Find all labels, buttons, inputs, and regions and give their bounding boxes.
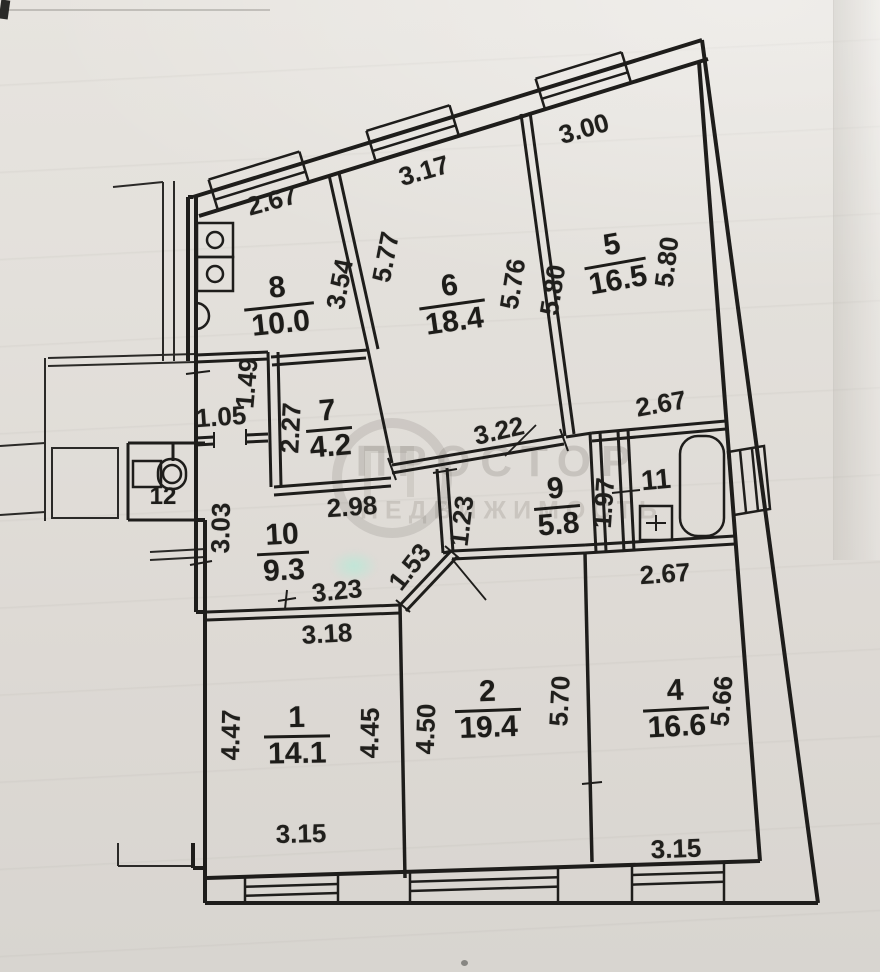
dim-room1-top: 3.18 (301, 617, 353, 651)
room-area: 16.6 (647, 709, 707, 744)
room-label-5: 5 16.5 (579, 225, 652, 301)
room-number: 6 (439, 270, 460, 303)
room-label-9: 9 5.8 (531, 472, 583, 542)
dim-wc-bottom: 2.67 (639, 557, 692, 591)
window-symbol (632, 862, 724, 903)
dim-hall10-left: 3.03 (205, 502, 237, 553)
room-label-4: 4 16.6 (641, 674, 710, 743)
room-number: 7 (318, 395, 337, 427)
sink-icon (197, 223, 233, 257)
room-label-6: 6 18.4 (415, 267, 490, 342)
dim-wc-left: 1.97 (587, 477, 621, 530)
room-label-10: 10 9.3 (255, 519, 310, 588)
dim-entry-width: 1.05 (195, 400, 248, 434)
bathtub-icon (680, 436, 724, 536)
room-area: 10.0 (250, 304, 311, 341)
room-area: 4.2 (308, 429, 352, 464)
stove-icon (197, 257, 233, 291)
toilet-icon (640, 506, 672, 540)
dim-room4-bottom: 3.15 (650, 833, 702, 866)
floorplan-drawing (0, 0, 880, 972)
dim-room1-bottom: 3.15 (275, 818, 326, 850)
room-number: 10 (265, 519, 300, 551)
room-number: 9 (546, 473, 565, 505)
door-leaf-icon (452, 559, 486, 600)
room-label-12: 12 (150, 483, 177, 511)
dim-room5-right: 5.80 (649, 235, 686, 289)
dim-hall9-left: 1.23 (444, 494, 481, 548)
exterior-context-lines (0, 181, 205, 866)
dim-room2-right: 5.70 (543, 675, 577, 727)
room-number: 2 (479, 677, 497, 708)
room-area: 9.3 (262, 553, 305, 587)
room-number: 4 (666, 676, 684, 707)
room-label-11: 11 (640, 463, 672, 497)
dim-room1-left: 4.47 (215, 709, 247, 760)
window-symbol (536, 52, 631, 109)
dim-room2-left: 4.50 (410, 703, 443, 755)
room-label-2: 2 19.4 (454, 676, 522, 744)
room-area: 19.4 (459, 711, 518, 745)
room-number: 1 (288, 703, 305, 734)
room-area: 14.1 (268, 737, 327, 770)
dim-room7-bottom: 2.98 (326, 490, 379, 524)
dim-hall10-bottom: 3.23 (310, 573, 364, 609)
bottom-windows (245, 862, 724, 903)
dim-room7-side: 2.27 (274, 402, 308, 454)
room-number: 8 (267, 272, 287, 304)
room-label-1: 1 14.1 (263, 702, 330, 769)
room-number: 5 (601, 229, 623, 262)
room-label-8: 8 10.0 (241, 269, 318, 342)
floorplan-photo: ПРОСТОР НЕДВИЖИМОСТЬ (0, 0, 880, 972)
room-label-7: 7 4.2 (303, 394, 355, 464)
dim-room1-right: 4.45 (354, 707, 386, 758)
room-area: 5.8 (536, 507, 580, 542)
dim-room4-right: 5.66 (704, 674, 739, 727)
